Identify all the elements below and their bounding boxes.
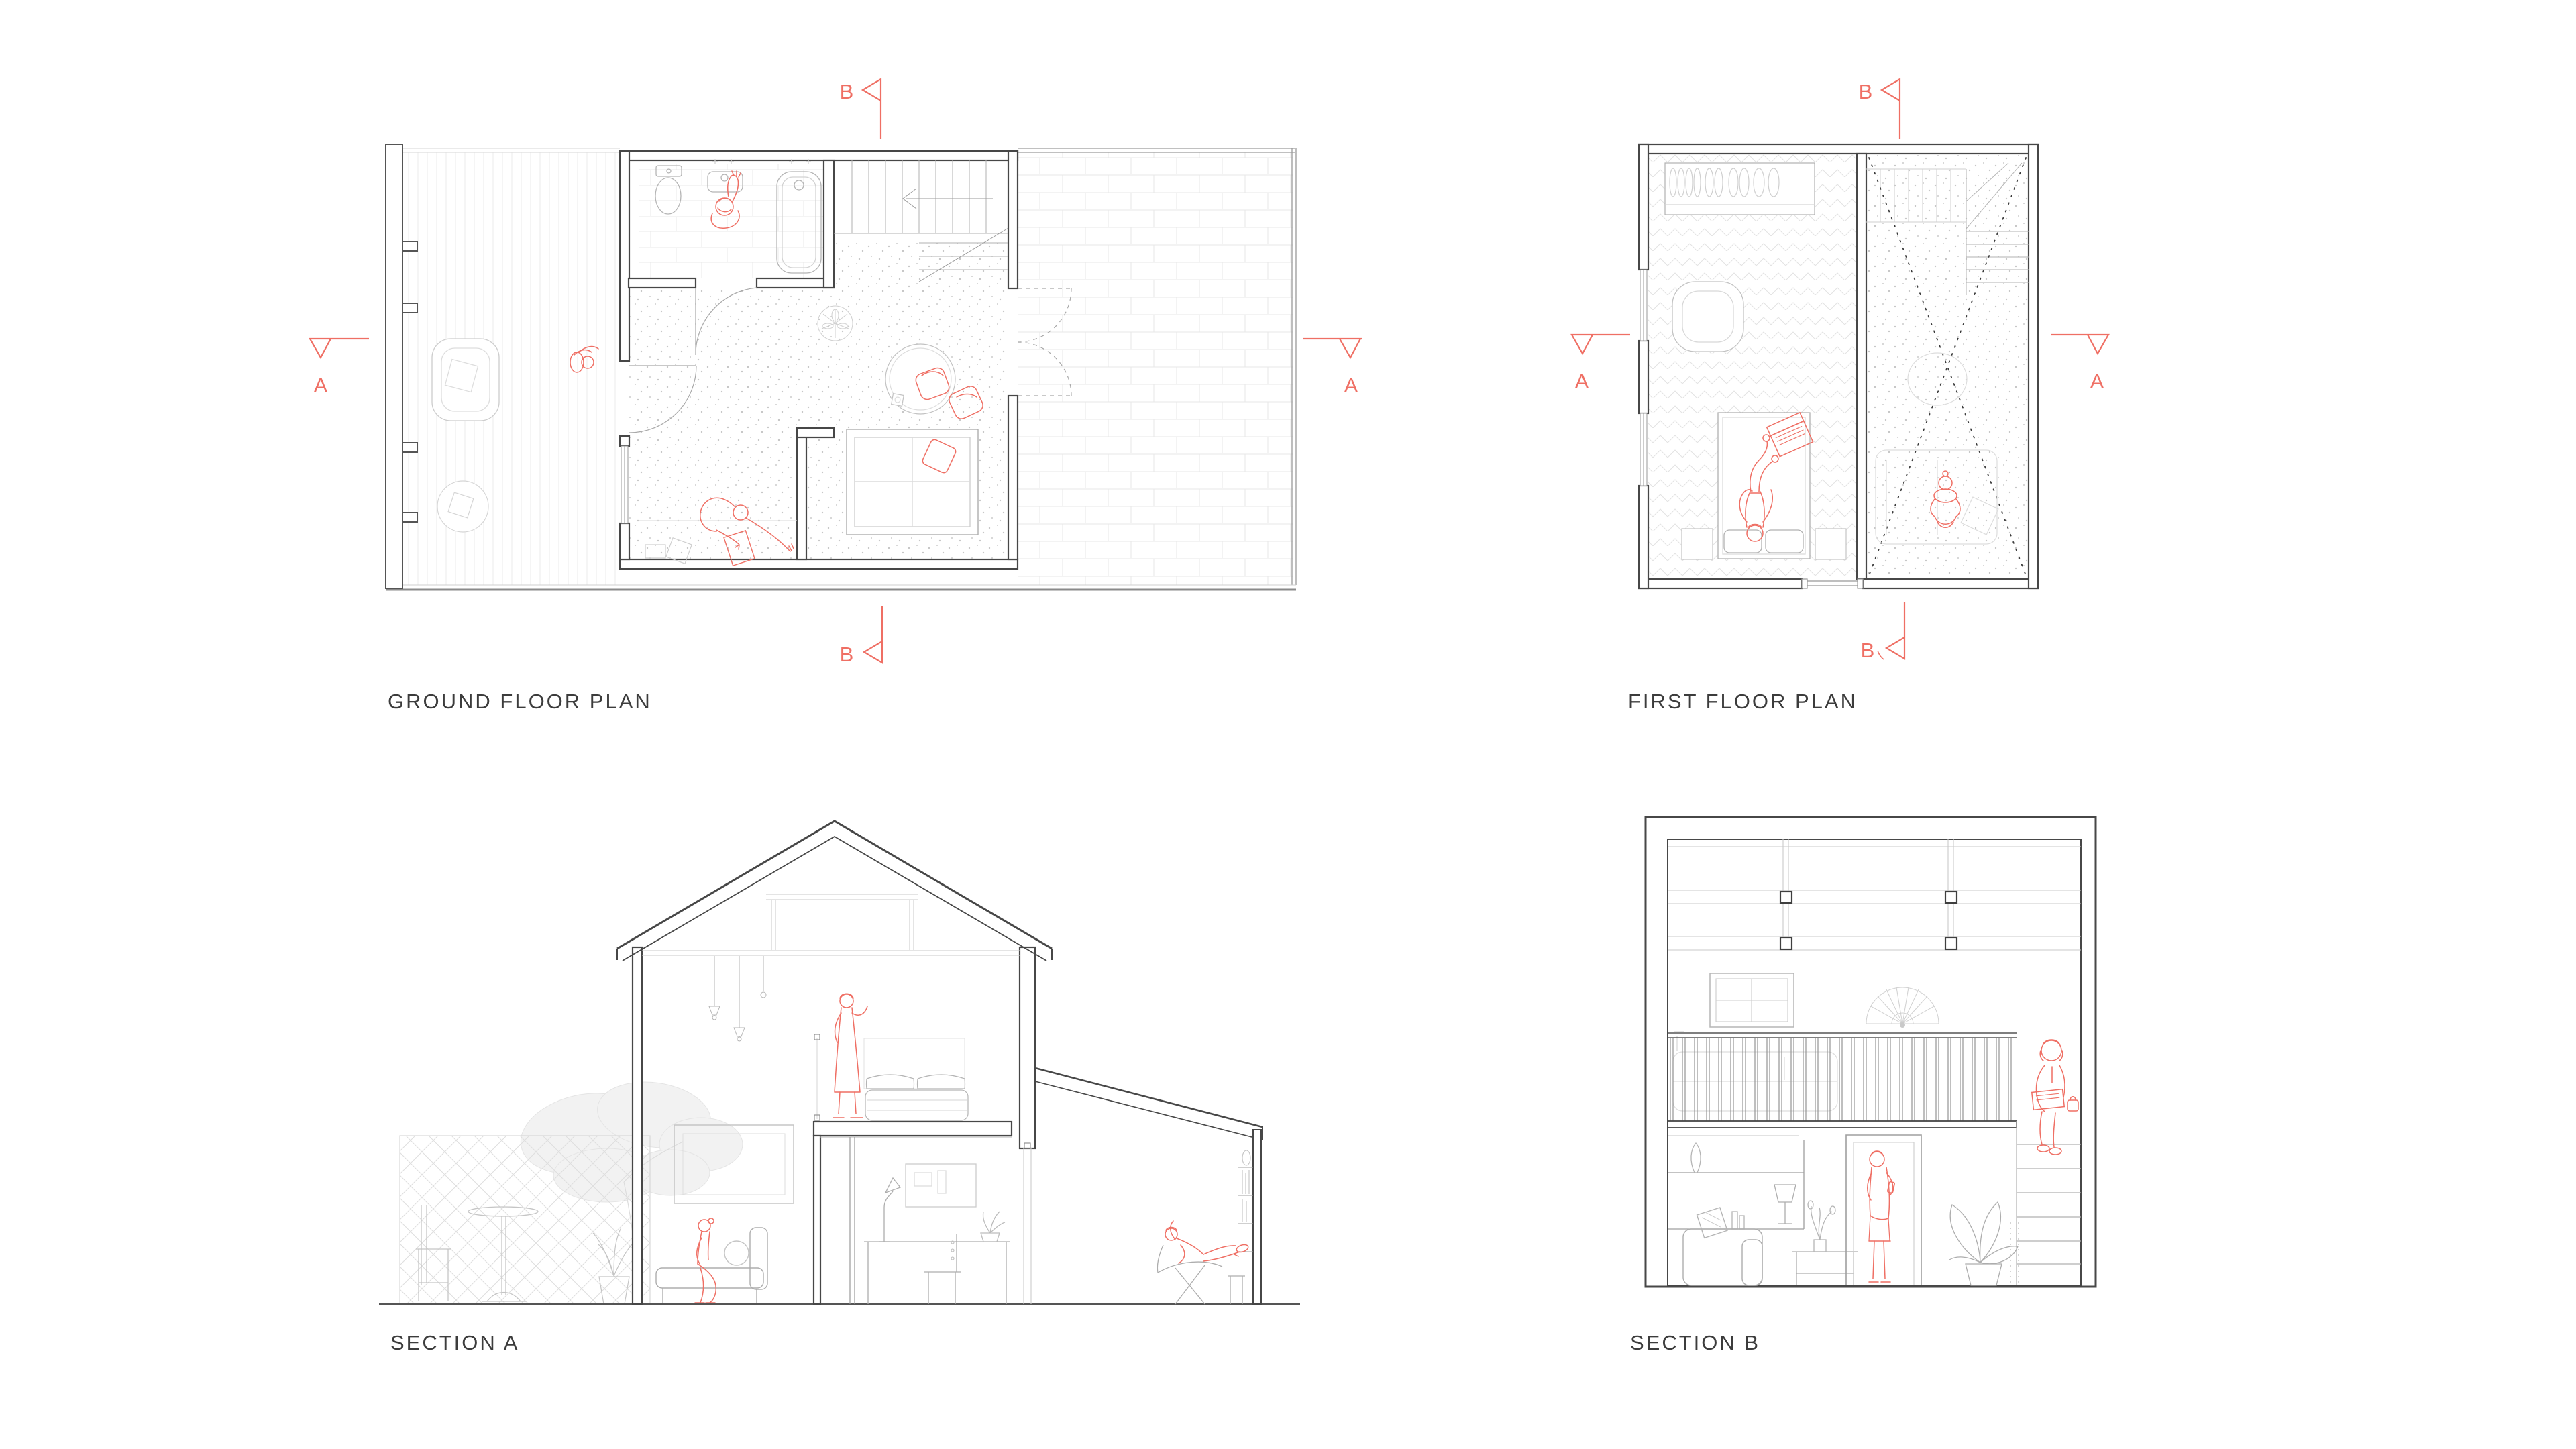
section-b-label: SECTION B	[1630, 1331, 1760, 1355]
lounge-chair	[1157, 1245, 1245, 1304]
study-furniture	[864, 1164, 1010, 1304]
armchair	[1672, 282, 1743, 352]
person-standing-bedroom	[833, 994, 867, 1118]
section-marker-b-top	[1882, 79, 1900, 139]
marker-letter-b-top: B	[1859, 80, 1873, 103]
partition-wall	[1857, 154, 1866, 579]
bed-section	[864, 1038, 968, 1120]
first-floor-plan-drawing: A A B B	[1556, 54, 2160, 698]
marker-letter-b-bottom: B	[840, 643, 854, 666]
slab-edge-balustrade	[814, 1034, 820, 1120]
bottom-door-threshold	[1802, 579, 1863, 588]
marker-letter-a-right: A	[1344, 374, 1358, 397]
person-lounging-annex	[1165, 1221, 1249, 1263]
glazed-wall-right	[1024, 1143, 1031, 1304]
terrace-armchair	[432, 339, 499, 421]
marker-letter-b-bottom: B	[1861, 639, 1875, 662]
hall-floor-stipple2	[834, 243, 1008, 288]
pendant-lights	[709, 956, 766, 1041]
marker-letter-a-right: A	[2090, 370, 2104, 393]
wardrobe	[1665, 163, 1815, 215]
marker-letter-a-left: A	[314, 374, 328, 397]
mezzanine-balustrade	[1668, 1033, 2017, 1128]
terrace-side-table	[437, 481, 488, 532]
ground-floor-plan-drawing: A A B B	[295, 54, 1395, 698]
stair-direction-arrow	[903, 189, 993, 209]
annex-bookshelf	[1238, 1150, 1253, 1252]
section-marker-a-left	[1572, 335, 1630, 354]
ceiling-and-collar	[642, 894, 1020, 955]
section-b-drawing	[1610, 792, 2133, 1328]
sofa-section	[656, 1228, 767, 1303]
ground-floor-plan-label: GROUND FLOOR PLAN	[388, 690, 652, 714]
section-marker-b-bottom	[1878, 602, 1904, 659]
marker-letter-a-left: A	[1575, 370, 1589, 393]
study-partition	[850, 1137, 855, 1304]
dining-table	[885, 344, 955, 414]
section-a-label: SECTION A	[390, 1331, 519, 1355]
trellis-lattice	[400, 1136, 650, 1304]
marker-letter-b-top: B	[840, 80, 854, 103]
section-marker-a-left	[310, 339, 369, 358]
people-red	[695, 994, 1249, 1303]
section-a-drawing	[362, 792, 1315, 1328]
annex	[1035, 1068, 1263, 1304]
void-floor-stipple	[1866, 154, 2029, 579]
section-marker-b-bottom	[864, 606, 882, 663]
sofa	[847, 429, 978, 535]
section-marker-b-top	[863, 79, 881, 139]
roof	[617, 821, 1052, 961]
first-floor-plan-label: FIRST FLOOR PLAN	[1628, 690, 1858, 714]
section-marker-a-right	[2051, 335, 2108, 354]
left-wall-window	[621, 446, 628, 523]
patio-paving	[1018, 148, 1296, 585]
section-marker-a-right	[1303, 339, 1362, 358]
person-sitting-sofa	[695, 1218, 716, 1303]
drawing-sheet: A A B B GROUND FLOOR PLAN	[0, 0, 2576, 1449]
